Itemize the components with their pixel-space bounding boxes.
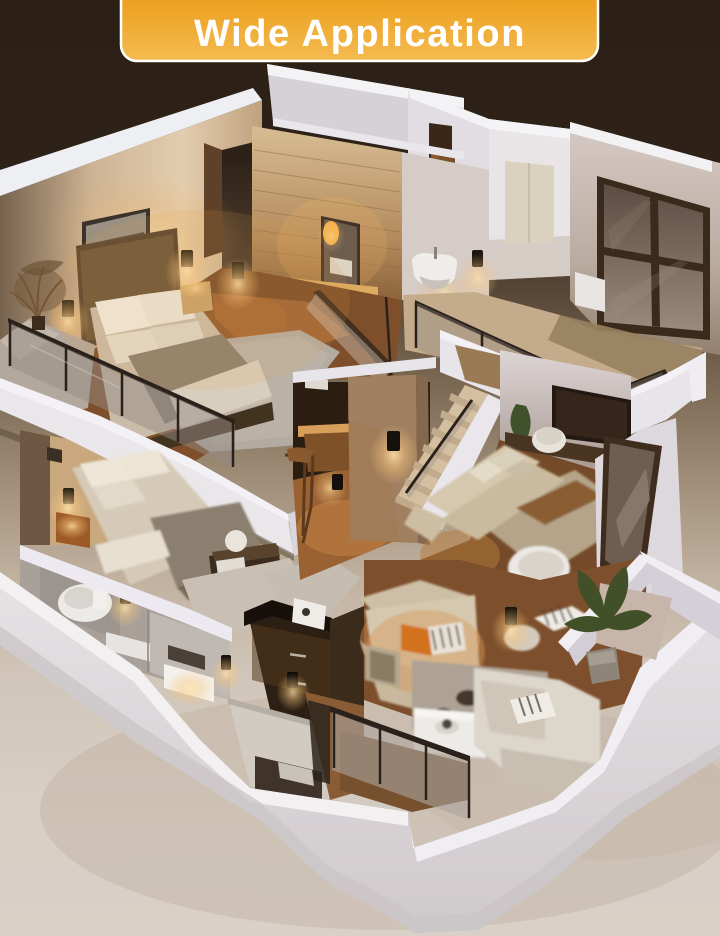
svg-text:Wide Application: Wide Application — [194, 13, 526, 55]
